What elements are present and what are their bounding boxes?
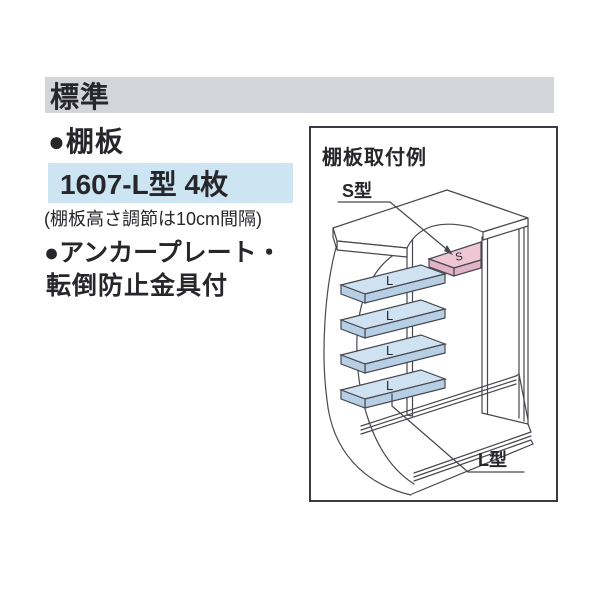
shelf-l-3-label: L [386,343,393,358]
section-header: 標準 [45,77,554,113]
shelf-model-highlight: 1607-L型 4枚 [48,163,293,203]
s-type-label: S型 [342,180,372,201]
shelf-l-1-label: L [386,273,393,288]
shelf-model-text: 1607-L型 4枚 [48,163,228,203]
shelf-heading: ●棚板 [48,120,124,160]
shelf-l-4-label: L [386,378,393,393]
diagram-title: 棚板取付例 [322,145,427,169]
anchor-plate-line1: ●アンカープレート・ [44,233,282,269]
l-type-label: L型 [478,449,507,470]
shelf-install-example-box: L L L L S 棚板取付例 S型 L型 [309,126,558,502]
shelf-install-diagram: L L L L S 棚板取付例 S型 L型 [311,128,556,500]
shelf-l-2-label: L [386,308,393,323]
shelf-note: (棚板高さ調節は10cm間隔) [44,205,262,231]
section-header-label: 標準 [45,74,110,116]
anchor-plate-line2: 転倒防止金具付 [46,266,228,302]
right-wall [482,220,528,424]
page: { "header": { "title": "標準" }, "specs": … [0,0,600,600]
